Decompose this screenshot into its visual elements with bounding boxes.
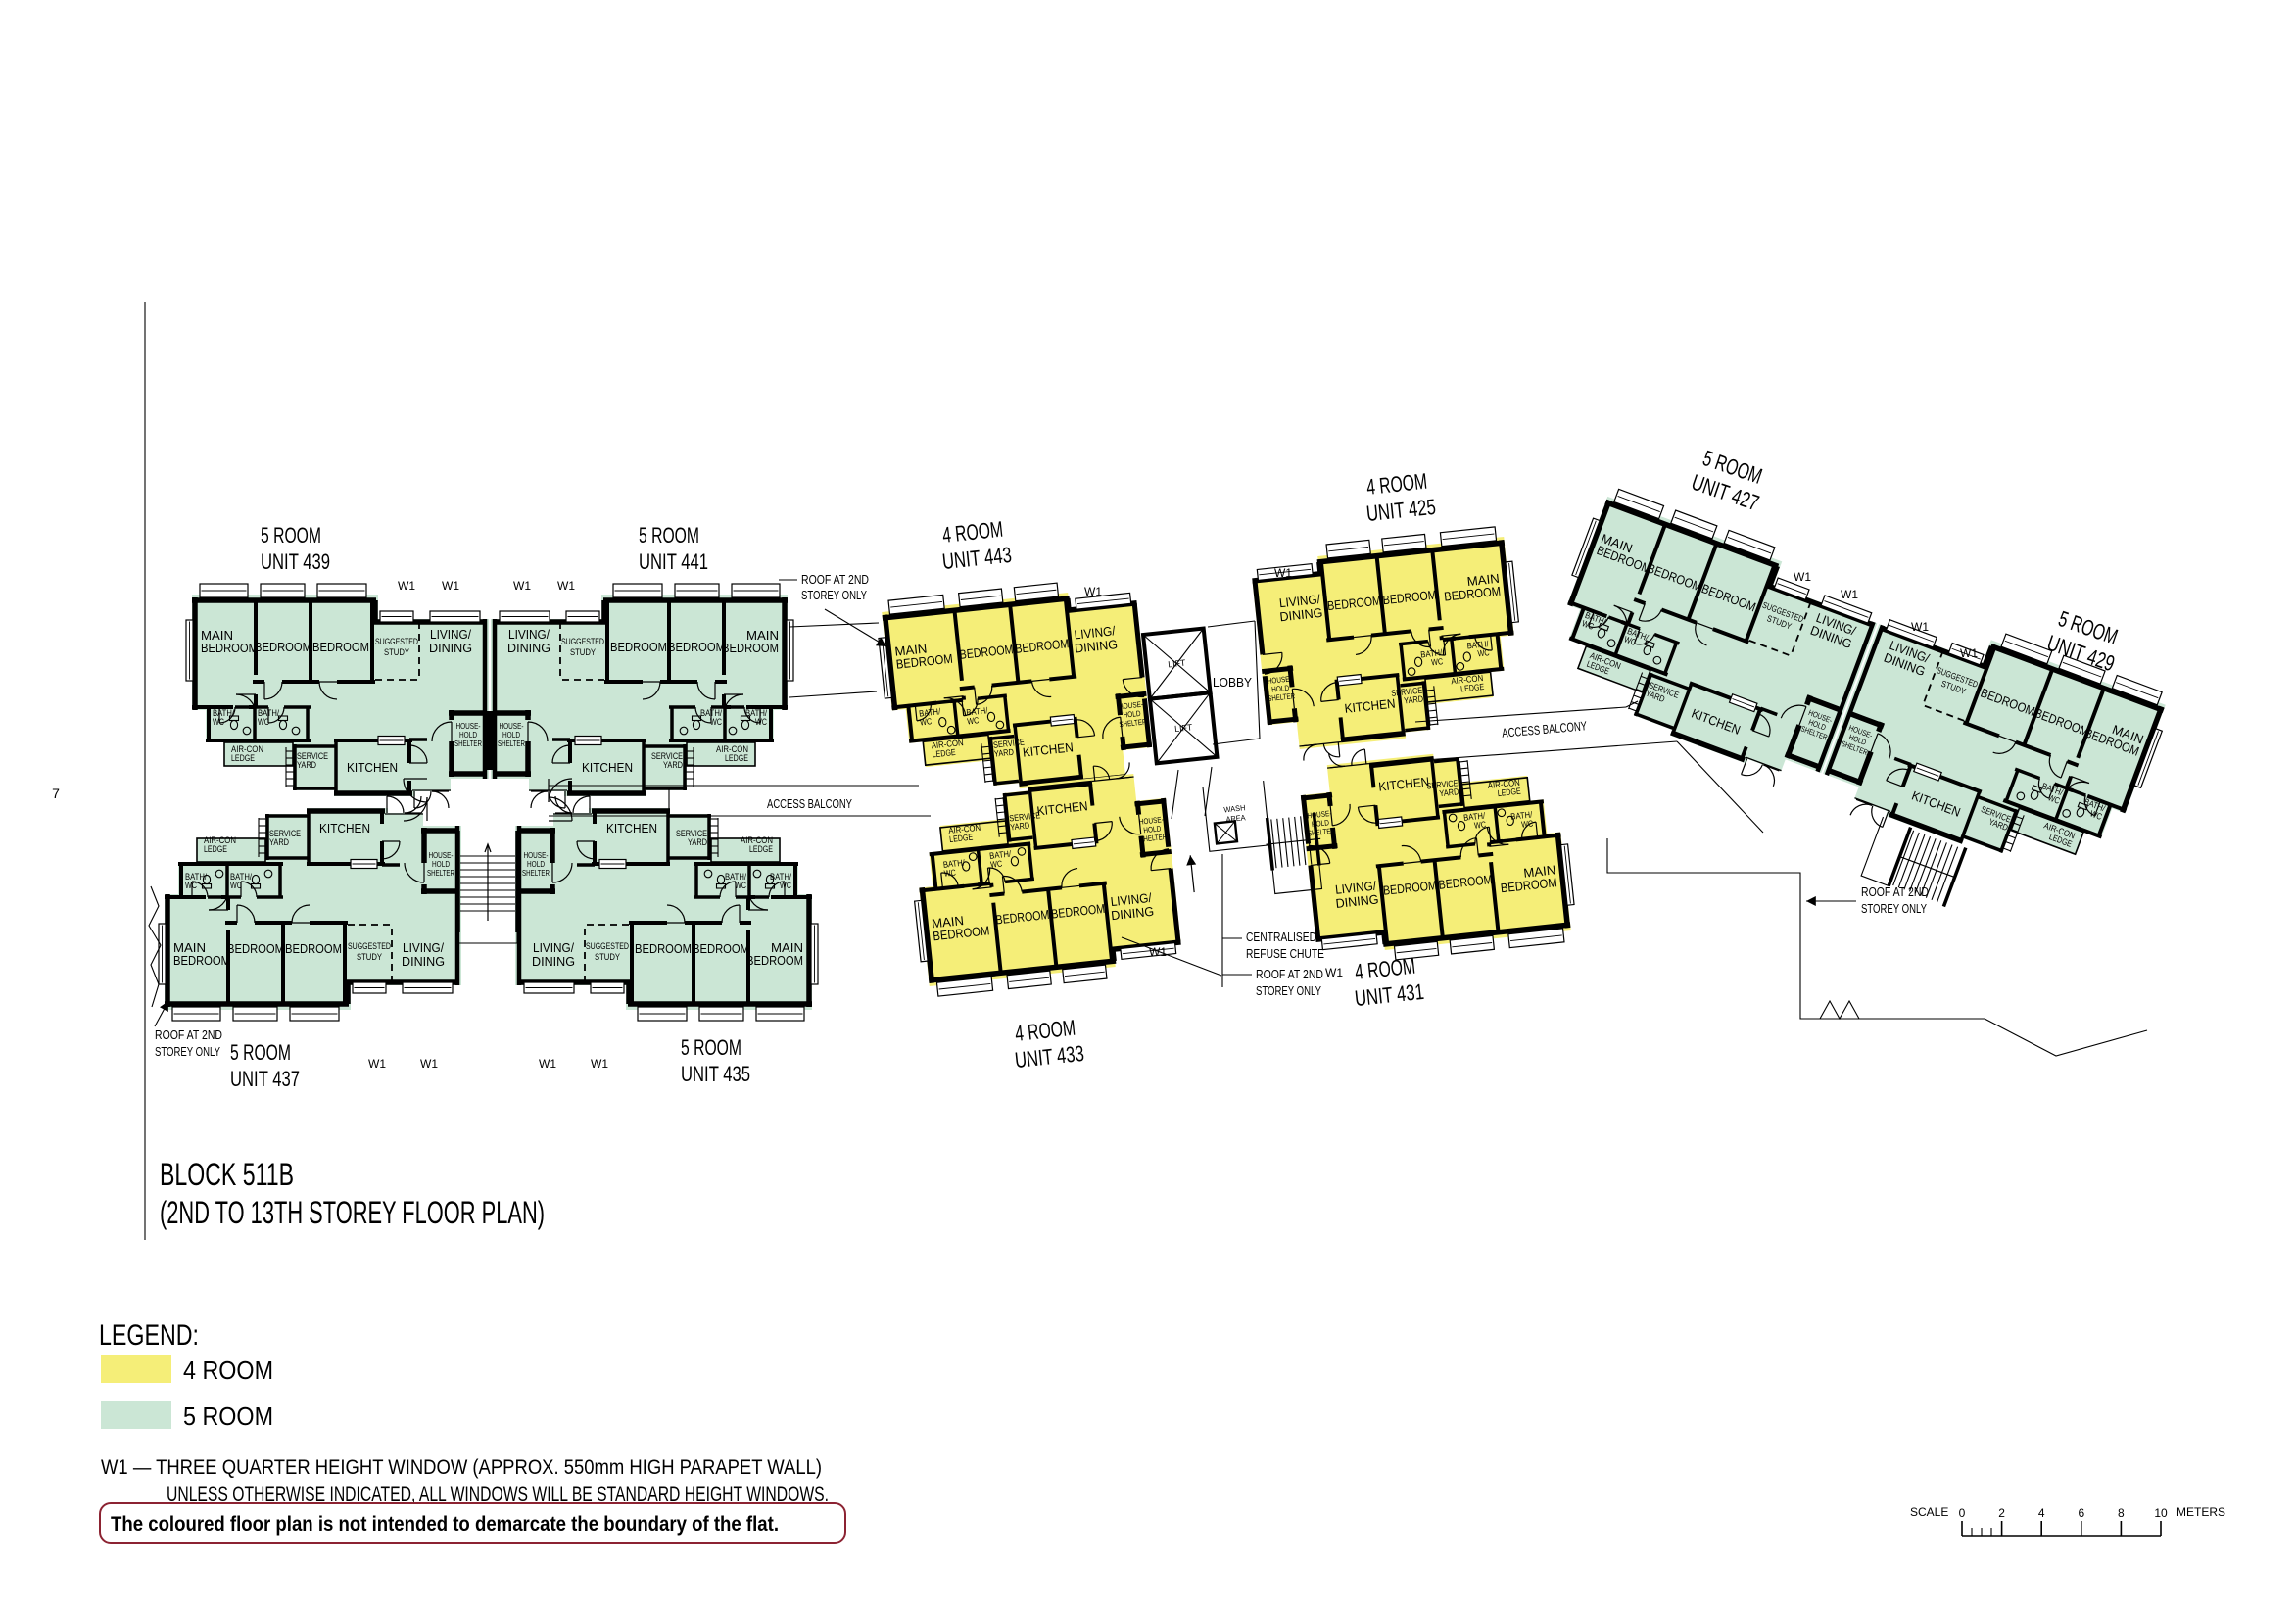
- svg-text:ROOF AT 2ND: ROOF AT 2ND: [1256, 967, 1323, 981]
- svg-text:HOUSE-: HOUSE-: [456, 722, 481, 731]
- svg-text:DINING: DINING: [507, 641, 550, 655]
- svg-text:YARD: YARD: [663, 760, 683, 770]
- svg-text:BEDROOM: BEDROOM: [746, 953, 803, 968]
- svg-text:4 ROOM: 4 ROOM: [183, 1356, 273, 1385]
- svg-text:SCALE: SCALE: [1910, 1505, 1948, 1519]
- svg-text:REFUSE CHUTE: REFUSE CHUTE: [1246, 946, 1324, 961]
- svg-text:LEDGE: LEDGE: [204, 844, 227, 854]
- svg-text:BEDROOM: BEDROOM: [635, 941, 692, 956]
- svg-text:W1: W1: [1841, 588, 1858, 601]
- svg-text:KITCHEN: KITCHEN: [347, 760, 398, 775]
- svg-text:WC: WC: [755, 717, 767, 727]
- svg-text:ROOF AT 2ND: ROOF AT 2ND: [1861, 884, 1929, 899]
- svg-text:BEDROOM: BEDROOM: [312, 640, 369, 654]
- svg-text:BEDROOM: BEDROOM: [668, 640, 725, 654]
- svg-text:W1: W1: [1325, 966, 1343, 979]
- svg-text:WC: WC: [1477, 647, 1490, 658]
- svg-text:STOREY ONLY: STOREY ONLY: [1256, 983, 1321, 998]
- svg-text:YARD: YARD: [688, 837, 707, 847]
- svg-text:SUGGESTED: SUGGESTED: [561, 637, 604, 646]
- svg-text:KITCHEN: KITCHEN: [582, 760, 633, 775]
- svg-text:UNIT 435: UNIT 435: [681, 1062, 750, 1086]
- svg-text:0: 0: [1959, 1506, 1966, 1520]
- svg-text:WC: WC: [943, 868, 956, 879]
- svg-text:BLOCK 511B: BLOCK 511B: [160, 1157, 294, 1192]
- svg-text:WC: WC: [990, 859, 1003, 870]
- svg-text:W1: W1: [557, 579, 575, 593]
- svg-text:UNIT 437: UNIT 437: [230, 1067, 300, 1091]
- svg-text:BEDROOM: BEDROOM: [173, 953, 230, 968]
- svg-text:WC: WC: [967, 715, 980, 726]
- svg-text:LIFT: LIFT: [1168, 658, 1186, 670]
- svg-text:WC: WC: [710, 717, 722, 727]
- svg-text:5 ROOM: 5 ROOM: [261, 523, 321, 548]
- svg-text:LEDGE: LEDGE: [231, 753, 255, 763]
- svg-text:LIVING/: LIVING/: [430, 627, 471, 642]
- svg-text:LEGEND:: LEGEND:: [99, 1319, 199, 1352]
- svg-text:STOREY ONLY: STOREY ONLY: [1861, 901, 1927, 916]
- svg-text:W1: W1: [539, 1057, 556, 1071]
- svg-text:KITCHEN: KITCHEN: [319, 821, 370, 835]
- svg-text:UNIT 441: UNIT 441: [639, 549, 708, 574]
- svg-text:LIVING/: LIVING/: [403, 940, 444, 955]
- svg-text:SHELTER: SHELTER: [427, 869, 454, 878]
- svg-text:UNIT 439: UNIT 439: [261, 549, 330, 574]
- svg-text:W1: W1: [513, 579, 531, 593]
- svg-text:STOREY ONLY: STOREY ONLY: [801, 588, 867, 602]
- svg-text:SHELTER: SHELTER: [498, 739, 525, 748]
- svg-text:DINING: DINING: [429, 641, 472, 655]
- svg-text:LIVING/: LIVING/: [533, 940, 574, 955]
- svg-text:BEDROOM: BEDROOM: [201, 641, 258, 655]
- svg-text:WC: WC: [1474, 819, 1487, 830]
- svg-text:HOUSE-: HOUSE-: [429, 851, 454, 860]
- svg-text:STOREY ONLY: STOREY ONLY: [155, 1044, 220, 1059]
- svg-text:WC: WC: [230, 881, 242, 890]
- svg-text:7: 7: [52, 786, 60, 801]
- svg-text:5 ROOM: 5 ROOM: [183, 1402, 273, 1431]
- svg-text:LEDGE: LEDGE: [749, 844, 773, 854]
- svg-text:WC: WC: [185, 881, 197, 890]
- svg-text:LIVING/: LIVING/: [508, 627, 550, 642]
- svg-text:HOLD: HOLD: [527, 860, 545, 869]
- svg-text:WC: WC: [213, 717, 224, 727]
- svg-text:WC: WC: [735, 881, 746, 890]
- svg-text:10: 10: [2154, 1506, 2168, 1520]
- svg-text:LIFT: LIFT: [1174, 722, 1193, 734]
- svg-text:5 ROOM: 5 ROOM: [230, 1040, 291, 1065]
- svg-text:METERS: METERS: [2176, 1505, 2225, 1519]
- svg-text:BEDROOM: BEDROOM: [693, 941, 749, 956]
- svg-text:W1: W1: [1911, 620, 1929, 634]
- svg-text:LOBBY: LOBBY: [1213, 675, 1252, 690]
- svg-text:4: 4: [2038, 1506, 2045, 1520]
- svg-text:BEDROOM: BEDROOM: [610, 640, 667, 654]
- svg-text:5 ROOM: 5 ROOM: [639, 523, 699, 548]
- svg-text:CENTRALISED: CENTRALISED: [1246, 930, 1316, 944]
- svg-text:5 ROOM: 5 ROOM: [681, 1035, 741, 1060]
- svg-text:8: 8: [2118, 1506, 2125, 1520]
- svg-text:W1: W1: [420, 1057, 438, 1071]
- svg-text:YARD: YARD: [1404, 693, 1424, 705]
- svg-text:LEDGE: LEDGE: [725, 753, 748, 763]
- svg-text:ROOF AT 2ND: ROOF AT 2ND: [155, 1027, 222, 1042]
- svg-text:W1 — THREE QUARTER HEIGHT WIND: W1 — THREE QUARTER HEIGHT WINDOW (APPROX…: [101, 1456, 822, 1479]
- svg-text:W1: W1: [442, 579, 459, 593]
- svg-text:WC: WC: [780, 881, 791, 890]
- svg-text:WC: WC: [1521, 818, 1534, 829]
- svg-text:BEDROOM: BEDROOM: [722, 641, 779, 655]
- svg-text:STUDY: STUDY: [384, 647, 409, 657]
- svg-text:SHELTER: SHELTER: [522, 869, 550, 878]
- svg-text:6: 6: [2078, 1506, 2084, 1520]
- svg-text:STUDY: STUDY: [595, 952, 620, 962]
- svg-text:HOUSE-: HOUSE-: [524, 851, 549, 860]
- svg-text:(2ND TO 13TH STOREY FLOOR PLAN: (2ND TO 13TH STOREY FLOOR PLAN): [160, 1195, 545, 1230]
- svg-text:HOLD: HOLD: [459, 731, 477, 739]
- svg-text:HOUSE-: HOUSE-: [500, 722, 524, 731]
- svg-text:DINING: DINING: [532, 954, 575, 969]
- svg-text:BEDROOM: BEDROOM: [255, 640, 311, 654]
- svg-text:KITCHEN: KITCHEN: [606, 821, 657, 835]
- svg-text:STUDY: STUDY: [357, 952, 382, 962]
- svg-text:W1: W1: [398, 579, 415, 593]
- svg-text:W1: W1: [1149, 945, 1167, 959]
- svg-text:UNLESS OTHERWISE INDICATED, AL: UNLESS OTHERWISE INDICATED, ALL WINDOWS …: [167, 1483, 829, 1505]
- svg-text:SHELTER: SHELTER: [454, 739, 482, 748]
- svg-text:BEDROOM: BEDROOM: [227, 941, 284, 956]
- svg-text:W1: W1: [1960, 646, 1978, 660]
- svg-text:HOLD: HOLD: [432, 860, 450, 869]
- svg-text:WC: WC: [258, 717, 269, 727]
- svg-text:2: 2: [1998, 1506, 2005, 1520]
- svg-text:ROOF AT 2ND: ROOF AT 2ND: [801, 572, 869, 587]
- svg-text:YARD: YARD: [1010, 820, 1030, 832]
- svg-text:W1: W1: [591, 1057, 608, 1071]
- svg-text:ACCESS BALCONY: ACCESS BALCONY: [767, 796, 852, 811]
- svg-text:W1: W1: [1084, 585, 1102, 598]
- svg-text:HOLD: HOLD: [502, 731, 520, 739]
- svg-text:DINING: DINING: [402, 954, 445, 969]
- svg-text:The coloured floor plan is not: The coloured floor plan is not intended …: [111, 1513, 779, 1536]
- svg-text:W1: W1: [1794, 570, 1811, 584]
- svg-text:W1: W1: [1274, 566, 1292, 580]
- svg-text:YARD: YARD: [993, 747, 1014, 759]
- svg-text:SUGGESTED: SUGGESTED: [348, 941, 391, 951]
- svg-text:YARD: YARD: [269, 837, 289, 847]
- svg-text:WC: WC: [1431, 656, 1444, 667]
- svg-text:STUDY: STUDY: [570, 647, 596, 657]
- svg-text:SUGGESTED: SUGGESTED: [375, 637, 418, 646]
- svg-text:W1: W1: [368, 1057, 386, 1071]
- svg-text:YARD: YARD: [1439, 787, 1459, 798]
- svg-text:WC: WC: [920, 716, 933, 727]
- svg-text:BEDROOM: BEDROOM: [285, 941, 342, 956]
- svg-text:YARD: YARD: [297, 760, 316, 770]
- svg-text:SUGGESTED: SUGGESTED: [586, 941, 629, 951]
